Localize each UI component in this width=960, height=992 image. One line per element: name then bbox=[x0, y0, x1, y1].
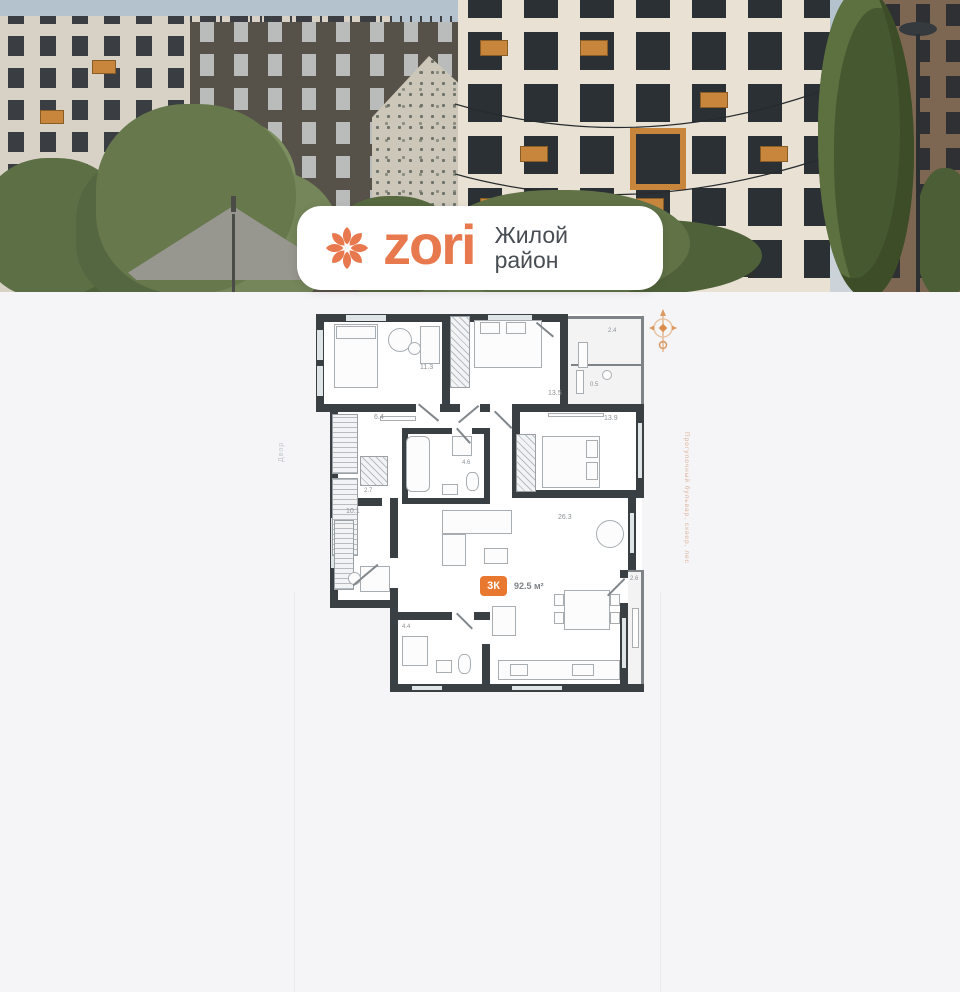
page: { "brand": { "logo_text": "zori", "tagli… bbox=[0, 0, 960, 710]
side-label-right: Прогулочный бульвар, сквер, лес bbox=[683, 432, 690, 564]
brand-banner: zori Жилой район bbox=[297, 206, 663, 290]
apartment-floor-plan: 11.3 13.5 2.4 0.5 6.4 13.9 4.6 2.7 10.1 … bbox=[302, 308, 648, 700]
sofa bbox=[442, 510, 512, 534]
pillow bbox=[506, 322, 526, 334]
side-label-left: Двор bbox=[278, 442, 285, 462]
total-area-label: 92.5 м² bbox=[514, 581, 544, 591]
coffee-table bbox=[484, 548, 508, 564]
pillow bbox=[480, 322, 500, 334]
desk bbox=[420, 326, 440, 364]
lot-line bbox=[660, 592, 661, 992]
sofa bbox=[442, 534, 466, 566]
bathtub bbox=[406, 436, 430, 492]
lot-line bbox=[294, 592, 295, 992]
wardrobe-hatch bbox=[450, 316, 470, 388]
tv-bench bbox=[548, 413, 604, 417]
room-area-hallway: 6.4 bbox=[374, 414, 384, 421]
stove bbox=[572, 664, 594, 676]
wardrobe-hatch bbox=[516, 434, 536, 492]
room-area-storage: 0.5 bbox=[590, 382, 598, 388]
shower-drain bbox=[602, 370, 612, 380]
chair bbox=[554, 612, 564, 624]
brand-tagline: Жилой район bbox=[495, 223, 568, 274]
flower-icon bbox=[323, 224, 371, 272]
cabinet-shelf bbox=[578, 342, 588, 368]
chair bbox=[408, 342, 421, 355]
pillow bbox=[336, 326, 376, 339]
rooms-badge: 3К bbox=[480, 576, 507, 596]
poplar-tree bbox=[818, 0, 914, 292]
sink bbox=[442, 484, 458, 495]
chair bbox=[554, 594, 564, 606]
room-area-wardrobe: 2.7 bbox=[364, 488, 372, 494]
tagline-line2: район bbox=[495, 248, 568, 273]
armchair bbox=[596, 520, 624, 548]
cabinet-shelf bbox=[576, 370, 584, 394]
console bbox=[380, 416, 416, 421]
room-area-cabinet: 10.1 bbox=[346, 508, 360, 515]
kitchen-sink bbox=[510, 664, 528, 676]
room-area-bedroom-2: 13.5 bbox=[548, 390, 562, 397]
bush bbox=[916, 168, 960, 292]
chair bbox=[610, 612, 620, 624]
kitchen-island bbox=[492, 606, 516, 636]
room-area-shower-room: 4.4 bbox=[402, 624, 410, 630]
room-area-bedroom-3: 13.9 bbox=[604, 415, 618, 422]
toilet bbox=[466, 472, 479, 491]
room-area-kitchen-living: 26.3 bbox=[558, 514, 572, 521]
shelving bbox=[332, 414, 358, 474]
logo-text: zori bbox=[383, 223, 475, 268]
room-area-bedroom-1: 11.3 bbox=[420, 364, 433, 371]
desk bbox=[360, 566, 390, 592]
building-number: 2 bbox=[730, 234, 756, 288]
tagline-line1: Жилой bbox=[495, 223, 568, 248]
compass-icon bbox=[644, 308, 682, 356]
room-area-bathroom: 4.6 bbox=[462, 460, 470, 466]
toilet bbox=[458, 654, 471, 674]
chair bbox=[610, 594, 620, 606]
balcony-bench bbox=[632, 608, 639, 648]
shower bbox=[402, 636, 428, 666]
room-area-loggia-right: 2.6 bbox=[630, 576, 638, 582]
sink bbox=[436, 660, 452, 673]
washing-machine bbox=[452, 436, 472, 456]
pillow bbox=[586, 462, 598, 480]
pillow bbox=[586, 440, 598, 458]
wardrobe-hatch bbox=[360, 456, 388, 486]
room-area-loggia-top: 2.4 bbox=[608, 328, 616, 334]
dining-table bbox=[564, 590, 610, 630]
